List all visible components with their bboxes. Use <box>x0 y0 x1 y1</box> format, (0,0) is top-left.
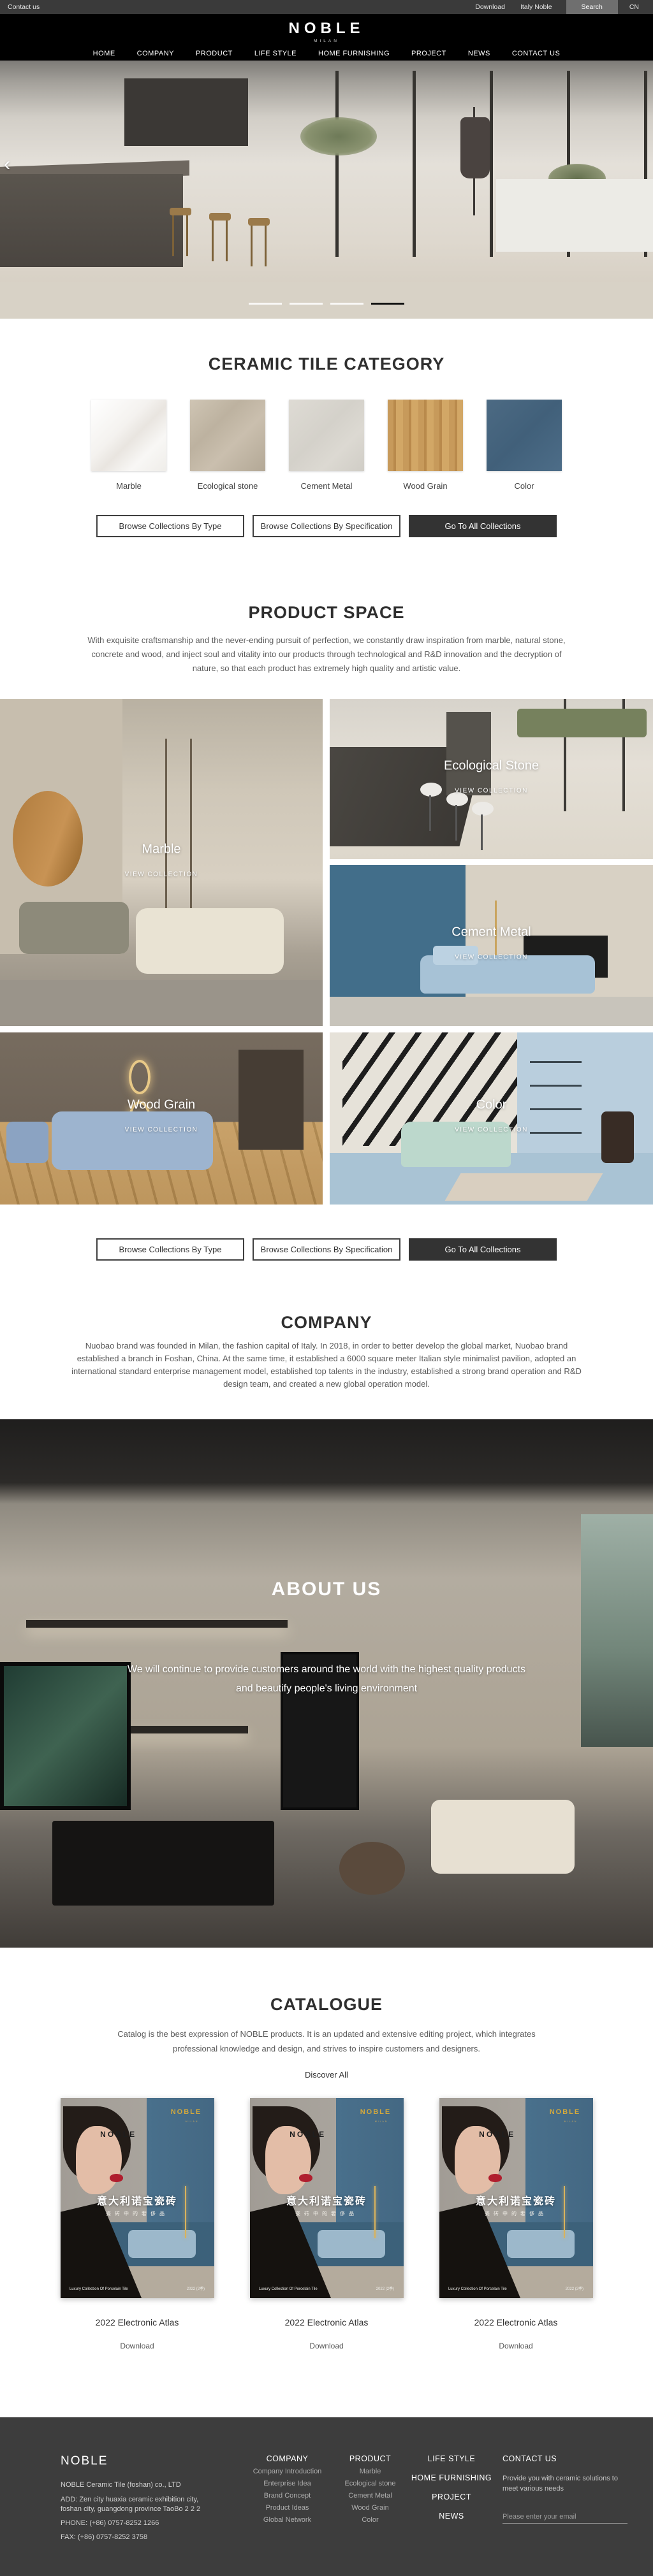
cover-footer-left: Luxury Collection Of Porcelain Tile <box>259 2287 318 2291</box>
decor <box>339 1842 404 1895</box>
decor <box>129 1060 150 1094</box>
carousel-dash-1[interactable] <box>249 303 282 305</box>
footer-link-home-furnishing[interactable]: HOME FURNISHING <box>407 2473 496 2482</box>
download-link[interactable]: Download <box>475 3 505 11</box>
footer-link-brand-concept[interactable]: Brand Concept <box>241 2493 334 2500</box>
download-link[interactable]: Download <box>439 2341 593 2350</box>
go-to-all-collections-button[interactable]: Go To All Collections <box>409 1238 557 1261</box>
category-tile-ecological-stone[interactable]: Ecological stone <box>190 400 265 491</box>
nav-item-company[interactable]: COMPANY <box>137 50 174 57</box>
footer-address: ADD: Zen city huaxia ceramic exhibition … <box>61 2495 217 2514</box>
hero-bar-stool <box>248 218 270 226</box>
tile-label: Color <box>487 481 562 491</box>
footer-link-global-network[interactable]: Global Network <box>241 2517 334 2524</box>
cover-footer-right: 2022 (2季) <box>566 2285 583 2291</box>
footer-column-company: COMPANY Company Introduction Enterprise … <box>241 2454 334 2524</box>
decor <box>581 1514 653 1747</box>
cover-title-cn: 意大利诺宝瓷砖 <box>61 2192 214 2208</box>
hero-bar-stool <box>170 208 191 215</box>
catalogue-item-label: 2022 Electronic Atlas <box>61 2317 214 2327</box>
carousel-dash-2[interactable] <box>290 303 323 305</box>
footer-column-title: PRODUCT <box>334 2454 407 2463</box>
footer-phone: PHONE: (+86) 0757-8252 1266 <box>61 2519 159 2527</box>
cover-brand-gold-sub: MILAN <box>186 2120 199 2123</box>
hero-gravel-patio <box>496 179 653 251</box>
category-tiles-row: Marble Ecological stone Cement Metal Woo… <box>0 400 653 491</box>
collection-card-ecological-stone[interactable]: Ecological Stone VIEW COLLECTION <box>330 699 653 859</box>
decor <box>330 997 653 1026</box>
catalogue-cover[interactable]: NOBLE MILAN NOBLE 意大利诺宝瓷砖 瓷砖中的奢侈品 Luxury… <box>439 2098 593 2298</box>
contact-us-link[interactable]: Contact us <box>8 3 40 11</box>
decor <box>472 802 494 816</box>
cover-footer-left: Luxury Collection Of Porcelain Tile <box>70 2287 128 2291</box>
catalogue-item-label: 2022 Electronic Atlas <box>250 2317 404 2327</box>
hero-slider: ‹ <box>0 61 653 319</box>
catalogue-item-3: NOBLE MILAN NOBLE 意大利诺宝瓷砖 瓷砖中的奢侈品 Luxury… <box>439 2098 593 2350</box>
nav-item-home-furnishing[interactable]: HOME FURNISHING <box>318 50 390 57</box>
language-toggle-cn[interactable]: CN <box>629 3 639 11</box>
catalogue-item-label: 2022 Electronic Atlas <box>439 2317 593 2327</box>
catalogue-cover[interactable]: NOBLE MILAN NOBLE 意大利诺宝瓷砖 瓷砖中的奢侈品 Luxury… <box>250 2098 404 2298</box>
view-collection-link[interactable]: VIEW COLLECTION <box>330 1127 653 1134</box>
hero-bar-stool <box>209 213 231 221</box>
decor <box>0 980 323 1026</box>
decor <box>52 1821 274 1906</box>
view-collection-link[interactable]: VIEW COLLECTION <box>330 787 653 794</box>
footer-link-marble[interactable]: Marble <box>334 2468 407 2475</box>
collection-label: Color VIEW COLLECTION <box>330 1098 653 1134</box>
footer-column-title: COMPANY <box>241 2454 334 2463</box>
view-collection-link[interactable]: VIEW COLLECTION <box>0 1127 323 1134</box>
carousel-indicators <box>0 303 653 305</box>
about-us-description: We will continue to provide customers ar… <box>0 1660 653 1698</box>
category-buttons-row: Browse Collections By Type Browse Collec… <box>0 515 653 537</box>
cement-metal-swatch-image <box>289 400 364 471</box>
ecological-stone-swatch-image <box>190 400 265 471</box>
collection-label: Cement Metal VIEW COLLECTION <box>330 925 653 960</box>
cover-footer-left: Luxury Collection Of Porcelain Tile <box>448 2287 507 2291</box>
collection-label: Ecological Stone VIEW COLLECTION <box>330 758 653 794</box>
site-header: NOBLE MILAN HOME COMPANY PRODUCT LIFE ST… <box>0 14 653 61</box>
cover-brand-dark: NOBLE <box>100 2130 136 2139</box>
download-link[interactable]: Download <box>250 2341 404 2350</box>
footer-link-wood-grain[interactable]: Wood Grain <box>334 2505 407 2512</box>
footer-brand: NOBLE <box>61 2454 108 2468</box>
hero-kitchen-island <box>0 174 183 267</box>
category-tile-wood-grain[interactable]: Wood Grain <box>388 400 463 491</box>
cover-brand-gold-sub: MILAN <box>375 2120 388 2123</box>
decor <box>26 1620 288 1628</box>
noble-logo-subtitle: MILAN <box>0 39 653 43</box>
footer-column-product: PRODUCT Marble Ecological stone Cement M… <box>334 2454 407 2524</box>
cover-footer-right: 2022 (2季) <box>376 2285 394 2291</box>
cover-brand-gold: NOBLE <box>550 2108 581 2116</box>
decor <box>136 908 284 974</box>
footer-link-product-ideas[interactable]: Product Ideas <box>241 2505 334 2512</box>
cover-brand-gold: NOBLE <box>360 2108 392 2116</box>
tile-label: Wood Grain <box>388 481 463 491</box>
collection-card-marble[interactable]: Marble VIEW COLLECTION <box>0 699 323 1026</box>
view-collection-link[interactable]: VIEW COLLECTION <box>0 871 323 878</box>
collection-name: Cement Metal <box>330 925 653 939</box>
footer-company-line: NOBLE Ceramic Tile (foshan) co., LTD <box>61 2481 220 2489</box>
hero-slide-image <box>124 78 249 145</box>
cover-footer-right: 2022 (2季) <box>187 2285 205 2291</box>
footer-link-news[interactable]: NEWS <box>407 2512 496 2521</box>
about-line-1: We will continue to provide customers ar… <box>0 1660 653 1679</box>
cover-subtitle-cn: 瓷砖中的奢侈品 <box>61 2210 214 2217</box>
category-tile-color[interactable]: Color <box>487 400 562 491</box>
tile-label: Marble <box>91 481 166 491</box>
italy-noble-link[interactable]: Italy Noble <box>520 3 552 11</box>
footer-link-ecological-stone[interactable]: Ecological stone <box>334 2480 407 2487</box>
hero-greenery <box>300 117 377 156</box>
nav-item-news[interactable]: NEWS <box>468 50 490 57</box>
collection-name: Marble <box>0 842 323 857</box>
browse-by-specification-button[interactable]: Browse Collections By Specification <box>253 1238 400 1261</box>
marble-swatch-image <box>91 400 166 471</box>
footer-link-project[interactable]: PROJECT <box>407 2493 496 2501</box>
collection-name: Wood Grain <box>0 1098 323 1113</box>
noble-logo[interactable]: NOBLE <box>0 20 653 38</box>
about-us-title: ABOUT US <box>0 1579 653 1600</box>
nav-item-home[interactable]: HOME <box>93 50 115 57</box>
color-swatch-image <box>487 400 562 471</box>
cover-subtitle-cn: 瓷砖中的奢侈品 <box>250 2210 404 2217</box>
footer-fax: FAX: (+86) 0757-8252 3758 <box>61 2533 147 2541</box>
decor <box>444 1173 603 1201</box>
discover-all-link[interactable]: Discover All <box>0 2070 653 2080</box>
footer-column-title: CONTACT US <box>503 2454 630 2463</box>
footer-column-contact: CONTACT US Provide you with ceramic solu… <box>503 2454 630 2524</box>
nav-item-life-style[interactable]: LIFE STYLE <box>254 50 297 57</box>
catalogue-item-1: NOBLE MILAN NOBLE 意大利诺宝瓷砖 瓷砖中的奢侈品 Luxury… <box>61 2098 214 2350</box>
model-lips <box>299 2174 313 2182</box>
collection-label: Marble VIEW COLLECTION <box>0 842 323 878</box>
decor <box>517 709 647 737</box>
hero-garment <box>460 117 490 178</box>
browse-by-type-button[interactable]: Browse Collections By Type <box>96 1238 244 1261</box>
collection-name: Ecological Stone <box>330 758 653 773</box>
browse-by-specification-button[interactable]: Browse Collections By Specification <box>253 515 400 537</box>
catalogue-section-title: CATALOGUE <box>0 1995 653 2015</box>
catalogue-covers-row: NOBLE MILAN NOBLE 意大利诺宝瓷砖 瓷砖中的奢侈品 Luxury… <box>0 2098 653 2350</box>
about-line-2: and beautify people's living environment <box>0 1679 653 1698</box>
company-description: Nuobao brand was founded in Milan, the f… <box>71 1340 582 1391</box>
decor <box>431 1800 575 1874</box>
collection-card-cement-metal[interactable]: Cement Metal VIEW COLLECTION <box>330 865 653 1026</box>
cover-brand-dark: NOBLE <box>479 2130 515 2139</box>
wood-grain-swatch-image <box>388 400 463 471</box>
product-space-title: PRODUCT SPACE <box>0 603 653 623</box>
cover-title-cn: 意大利诺宝瓷砖 <box>250 2192 404 2208</box>
carousel-dash-3[interactable] <box>330 303 363 305</box>
nav-item-project[interactable]: PROJECT <box>411 50 446 57</box>
company-section-title: COMPANY <box>0 1313 653 1333</box>
footer-contact-text: Provide you with ceramic solutions to me… <box>503 2473 630 2494</box>
cover-brand-gold: NOBLE <box>171 2108 202 2116</box>
collection-label: Wood Grain VIEW COLLECTION <box>0 1098 323 1134</box>
main-navigation: HOME COMPANY PRODUCT LIFE STYLE HOME FUR… <box>0 50 653 57</box>
tile-label: Cement Metal <box>289 481 364 491</box>
download-link[interactable]: Download <box>61 2341 214 2350</box>
tile-label: Ecological stone <box>190 481 265 491</box>
collection-card-color[interactable]: Color VIEW COLLECTION <box>330 1032 653 1205</box>
collection-name: Color <box>330 1098 653 1113</box>
catalogue-description: Catalog is the best expression of NOBLE … <box>103 2027 550 2056</box>
cover-title-cn: 意大利诺宝瓷砖 <box>439 2192 593 2208</box>
model-lips <box>488 2174 503 2182</box>
catalogue-cover[interactable]: NOBLE MILAN NOBLE 意大利诺宝瓷砖 瓷砖中的奢侈品 Luxury… <box>61 2098 214 2298</box>
collection-card-wood-grain[interactable]: Wood Grain VIEW COLLECTION <box>0 1032 323 1205</box>
product-space-grid: Marble VIEW COLLECTION Ecological Stone … <box>0 699 653 1205</box>
about-us-banner: ABOUT US We will continue to provide cus… <box>0 1419 653 1948</box>
view-collection-link[interactable]: VIEW COLLECTION <box>330 953 653 960</box>
nav-item-contact-us[interactable]: CONTACT US <box>512 50 561 57</box>
footer-column-nav: LIFE STYLE HOME FURNISHING PROJECT NEWS <box>407 2454 496 2531</box>
cover-subtitle-cn: 瓷砖中的奢侈品 <box>439 2210 593 2217</box>
product-space-buttons-row: Browse Collections By Type Browse Collec… <box>0 1238 653 1261</box>
top-utility-bar: Contact us Download Italy Noble Search C… <box>0 0 653 14</box>
footer-link-color[interactable]: Color <box>334 2517 407 2524</box>
decor <box>19 902 129 954</box>
category-section-title: CERAMIC TILE CATEGORY <box>0 354 653 374</box>
search-button[interactable]: Search <box>566 0 618 14</box>
browse-by-type-button[interactable]: Browse Collections By Type <box>96 515 244 537</box>
email-input[interactable] <box>503 2510 627 2524</box>
carousel-dash-4-active[interactable] <box>371 303 404 305</box>
footer-link-cement-metal[interactable]: Cement Metal <box>334 2493 407 2500</box>
footer-link-life-style[interactable]: LIFE STYLE <box>407 2454 496 2463</box>
cover-brand-gold-sub: MILAN <box>564 2120 578 2123</box>
product-space-description: With exquisite craftsmanship and the nev… <box>84 633 569 676</box>
category-tile-cement-metal[interactable]: Cement Metal <box>289 400 364 491</box>
category-tile-marble[interactable]: Marble <box>91 400 166 491</box>
noble-homepage: Contact us Download Italy Noble Search C… <box>0 0 653 2576</box>
carousel-prev-arrow-icon[interactable]: ‹ <box>4 155 10 174</box>
hero-floor <box>0 282 653 319</box>
footer-link-company-introduction[interactable]: Company Introduction <box>241 2468 334 2475</box>
site-footer: NOBLE NOBLE Ceramic Tile (foshan) co., L… <box>0 2417 653 2576</box>
go-to-all-collections-button[interactable]: Go To All Collections <box>409 515 557 537</box>
footer-link-enterprise-idea[interactable]: Enterprise Idea <box>241 2480 334 2487</box>
nav-item-product[interactable]: PRODUCT <box>196 50 233 57</box>
cover-brand-dark: NOBLE <box>290 2130 326 2139</box>
model-lips <box>110 2174 124 2182</box>
catalogue-item-2: NOBLE MILAN NOBLE 意大利诺宝瓷砖 瓷砖中的奢侈品 Luxury… <box>250 2098 404 2350</box>
